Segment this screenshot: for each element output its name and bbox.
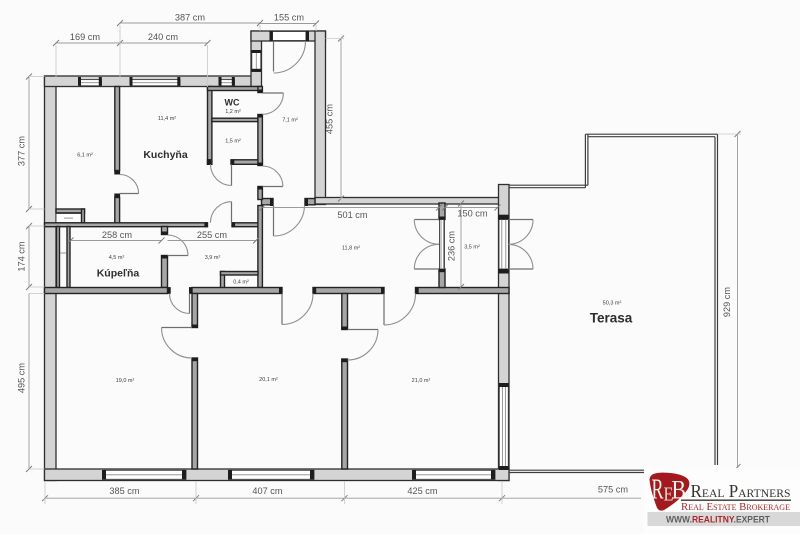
svg-text:7,1 m²: 7,1 m² <box>282 118 298 124</box>
svg-text:377 cm: 377 cm <box>17 136 27 166</box>
svg-text:575 cm: 575 cm <box>598 485 628 495</box>
svg-text:Kuchyňa: Kuchyňa <box>143 149 188 161</box>
svg-text:11,8 m²: 11,8 m² <box>342 246 360 252</box>
svg-text:425 cm: 425 cm <box>407 486 437 496</box>
svg-text:6,1 m²: 6,1 m² <box>77 153 93 159</box>
svg-text:385 cm: 385 cm <box>109 486 139 496</box>
svg-text:455 cm: 455 cm <box>325 104 335 134</box>
svg-text:Real Partners: Real Partners <box>691 481 791 501</box>
svg-text:929 cm: 929 cm <box>722 287 732 317</box>
svg-text:174 cm: 174 cm <box>17 241 27 271</box>
svg-text:Terasa: Terasa <box>590 311 633 326</box>
svg-text:Kúpeľňa: Kúpeľňa <box>97 268 140 280</box>
svg-text:240 cm: 240 cm <box>148 32 178 42</box>
svg-text:258 cm: 258 cm <box>102 230 132 240</box>
svg-text:0,4 m²: 0,4 m² <box>233 280 249 286</box>
svg-text:255 cm: 255 cm <box>197 230 227 240</box>
svg-text:236 cm: 236 cm <box>447 231 457 261</box>
svg-text:R: R <box>652 474 664 506</box>
svg-text:21,0 m²: 21,0 m² <box>412 378 431 384</box>
svg-text:155 cm: 155 cm <box>274 13 304 23</box>
svg-text:20,1 m²: 20,1 m² <box>259 377 278 383</box>
svg-text:1,2 m²: 1,2 m² <box>225 109 241 115</box>
svg-text:19,0 m²: 19,0 m² <box>116 378 135 384</box>
svg-text:50,3 m²: 50,3 m² <box>603 301 622 307</box>
svg-text:3,5 m²: 3,5 m² <box>464 245 480 251</box>
svg-text:11,4 m²: 11,4 m² <box>158 116 176 122</box>
svg-text:1,5 m²: 1,5 m² <box>225 139 241 145</box>
svg-text:WWW.REALITNY.EXPERT: WWW.REALITNY.EXPERT <box>666 514 770 524</box>
svg-text:387 cm: 387 cm <box>175 13 205 23</box>
svg-text:3,9 m²: 3,9 m² <box>205 255 221 261</box>
svg-text:4,5 m²: 4,5 m² <box>109 255 125 261</box>
svg-text:150 cm: 150 cm <box>457 209 487 219</box>
svg-text:501 cm: 501 cm <box>337 210 367 220</box>
svg-text:407 cm: 407 cm <box>252 486 282 496</box>
svg-text:Real Estate Brokerage: Real Estate Brokerage <box>681 501 790 513</box>
svg-text:169 cm: 169 cm <box>70 32 100 42</box>
svg-text:495 cm: 495 cm <box>17 363 27 393</box>
svg-text:WC: WC <box>225 98 240 108</box>
